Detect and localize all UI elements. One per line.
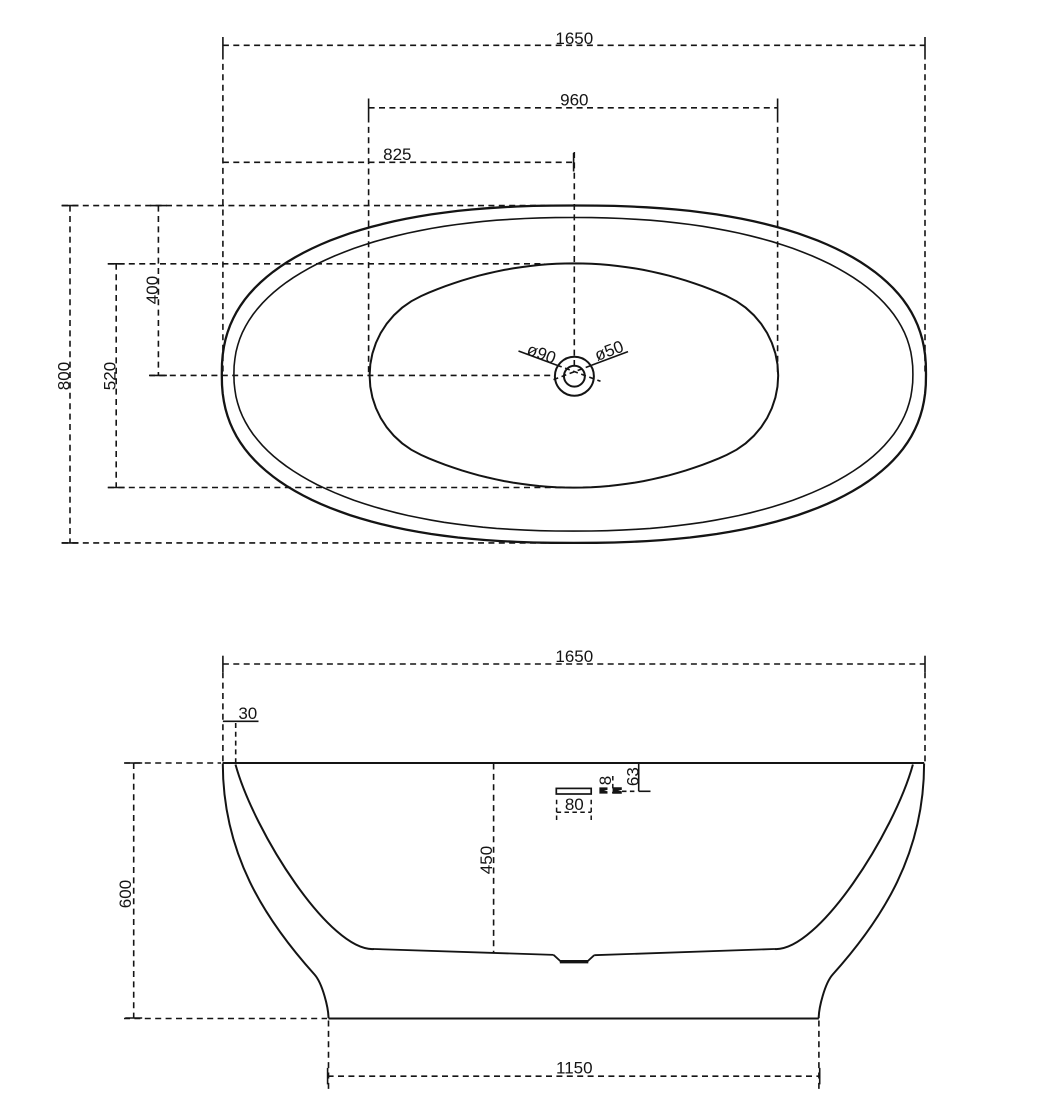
svg-text:600: 600 [116,880,135,908]
svg-text:80: 80 [565,795,584,814]
svg-text:800: 800 [55,362,74,390]
svg-text:825: 825 [383,145,411,164]
svg-text:30: 30 [238,704,257,723]
svg-text:960: 960 [560,91,588,110]
svg-text:400: 400 [143,276,162,304]
svg-text:450: 450 [477,846,496,874]
svg-text:8: 8 [596,776,615,785]
svg-text:1650: 1650 [555,29,593,48]
svg-text:63: 63 [623,767,642,786]
svg-text:520: 520 [101,362,120,390]
svg-text:1650: 1650 [555,647,593,666]
svg-text:1150: 1150 [556,1059,593,1078]
